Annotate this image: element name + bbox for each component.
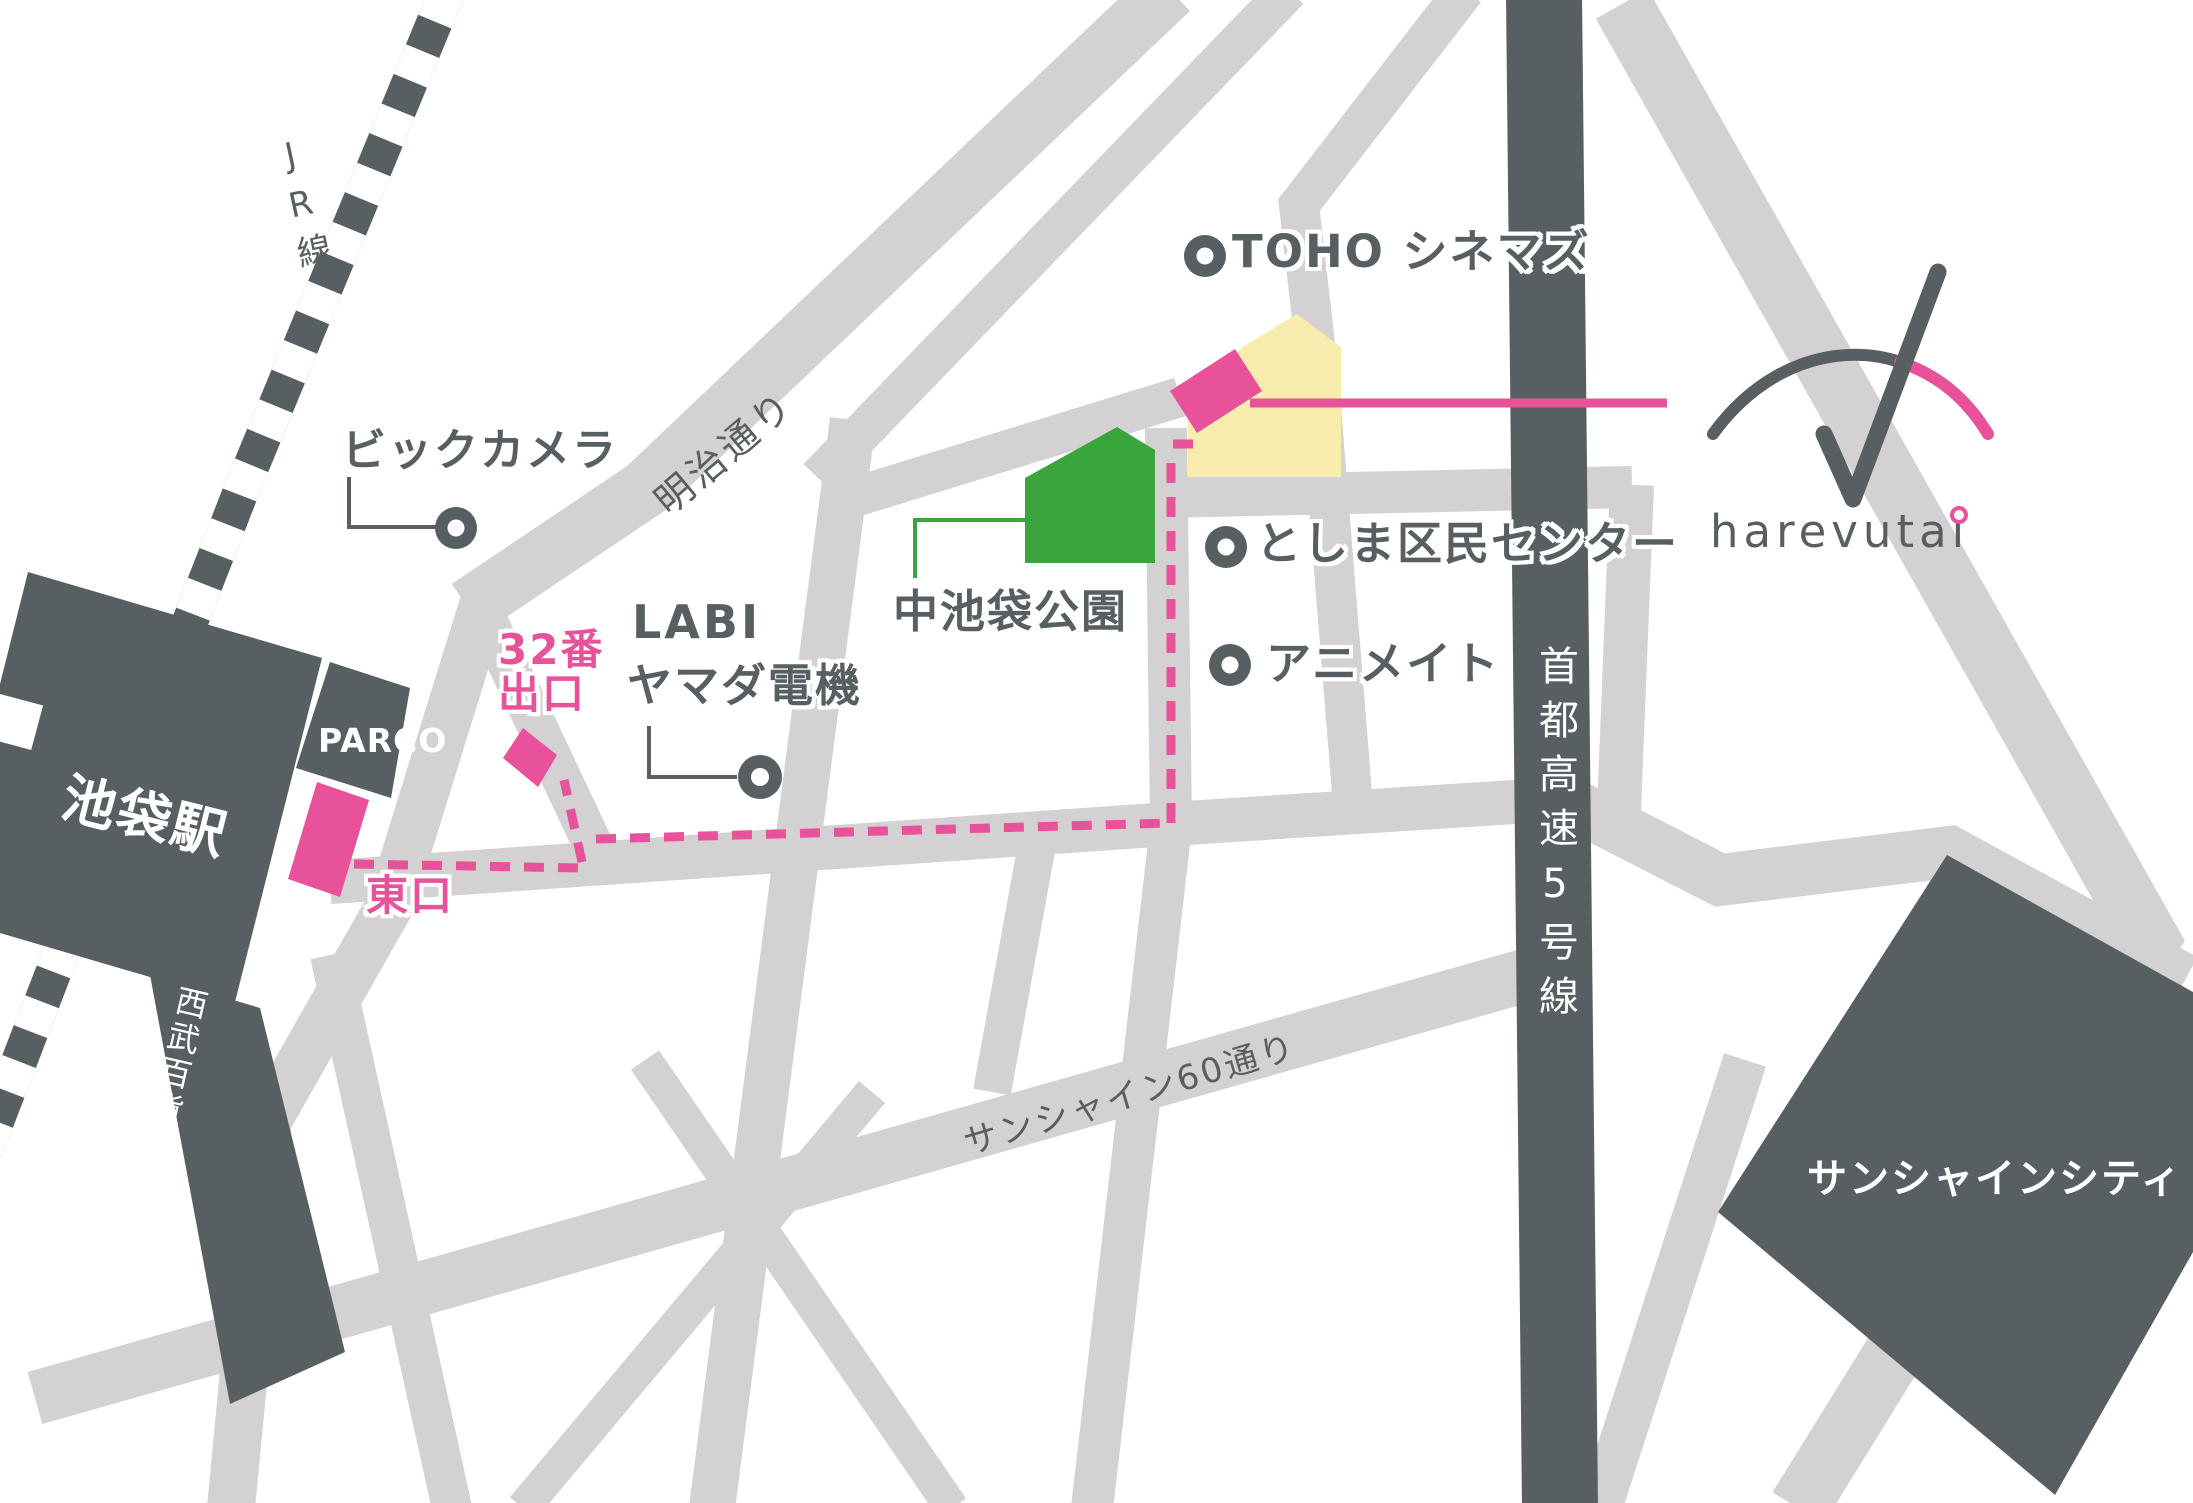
east-exit-label: 東口 bbox=[366, 874, 454, 918]
bic-camera-connector bbox=[349, 477, 437, 527]
toho-cinemas-label: TOHO シネマズ bbox=[1232, 228, 1591, 275]
harevutai-i-dot-icon bbox=[1950, 506, 1968, 524]
road-block bbox=[992, 828, 1040, 1092]
road-east-west bbox=[330, 800, 1545, 882]
labi-label: LABI bbox=[632, 598, 761, 646]
exit-32-line1: 32番 bbox=[498, 628, 604, 672]
parco-label: PARCO bbox=[318, 724, 447, 759]
animate-label: アニメイト bbox=[1266, 640, 1500, 687]
shuto-expressway-label: 首都高速5号線 bbox=[1534, 645, 1576, 1029]
bic-camera-label: ビックカメラ bbox=[342, 428, 618, 474]
access-map: JR線 ビックカメラ 池袋駅 PARCO 東口 32番 出口 LABI ヤマダ電… bbox=[0, 0, 2193, 1503]
logo-arc-pink bbox=[1900, 362, 1988, 434]
exit-32-line2: 出口 bbox=[498, 672, 604, 716]
labi-connector bbox=[649, 726, 737, 777]
labi-pin-icon bbox=[738, 755, 782, 799]
road-sw-1 bbox=[330, 955, 452, 1503]
road-sunshine-west bbox=[1600, 1060, 1745, 1503]
naka-ikebukuro-park-label: 中池袋公園 bbox=[893, 588, 1128, 635]
toshima-civic-center-label: としま区民センター bbox=[1256, 520, 1679, 567]
toho-cinemas-pin-icon bbox=[1184, 235, 1226, 277]
sunshine-city-label: サンシャインシティ bbox=[1807, 1158, 2183, 1200]
bic-camera-pin-icon bbox=[435, 507, 477, 549]
toshima-center-pin-icon bbox=[1205, 526, 1247, 568]
yamada-denki-label: ヤマダ電機 bbox=[627, 662, 862, 709]
animate-pin-icon bbox=[1209, 644, 1251, 686]
harevutai-wordmark: harevutai bbox=[1710, 508, 1969, 555]
building-ikebukuro-station bbox=[0, 572, 322, 1002]
park-connector bbox=[915, 520, 1025, 578]
exit-32-label: 32番 出口 bbox=[498, 628, 604, 716]
